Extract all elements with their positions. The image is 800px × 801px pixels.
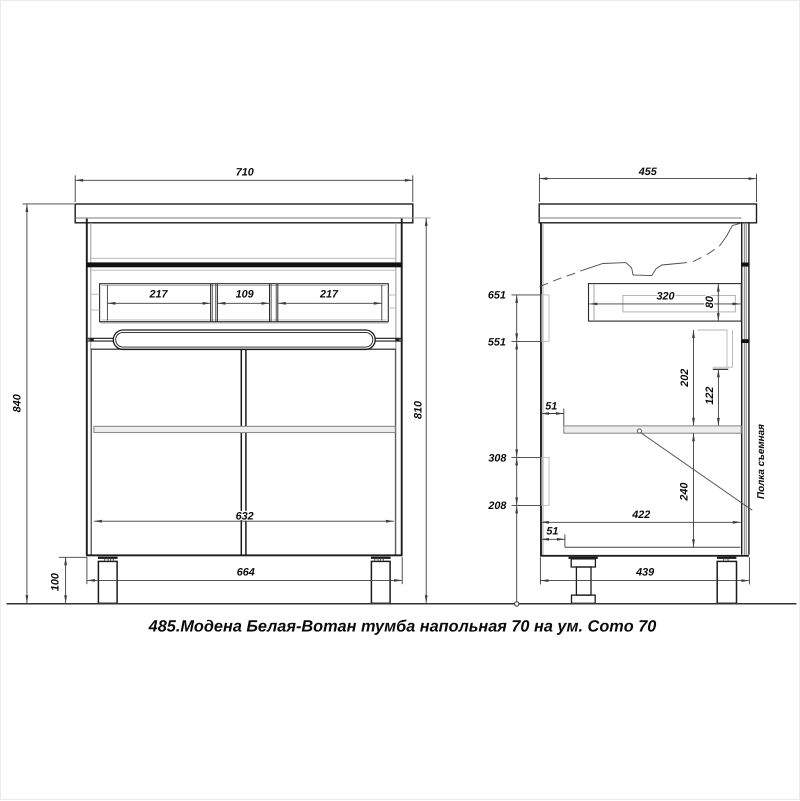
svg-text:320: 320 (656, 290, 674, 302)
svg-text:664: 664 (237, 567, 255, 579)
svg-text:51: 51 (545, 400, 557, 412)
svg-text:109: 109 (236, 288, 254, 300)
svg-text:217: 217 (148, 288, 168, 300)
svg-text:Полка съемная: Полка съемная (756, 424, 767, 499)
svg-text:217: 217 (319, 288, 339, 300)
svg-text:455: 455 (638, 166, 658, 178)
svg-text:710: 710 (236, 167, 254, 179)
svg-text:308: 308 (488, 452, 506, 464)
svg-text:810: 810 (412, 401, 424, 419)
svg-text:632: 632 (236, 510, 254, 522)
svg-text:485.Модена Белая-Вотан тумба н: 485.Модена Белая-Вотан тумба напольная 7… (148, 618, 657, 636)
svg-text:551: 551 (488, 336, 506, 348)
svg-text:80: 80 (704, 296, 716, 308)
svg-text:51: 51 (546, 526, 558, 538)
svg-text:840: 840 (12, 394, 24, 412)
svg-text:122: 122 (704, 387, 716, 405)
svg-text:439: 439 (635, 566, 654, 578)
svg-text:422: 422 (631, 509, 650, 521)
svg-text:202: 202 (679, 369, 691, 388)
svg-text:651: 651 (488, 289, 506, 301)
svg-text:100: 100 (50, 573, 62, 591)
svg-text:208: 208 (487, 500, 506, 512)
svg-text:240: 240 (678, 483, 690, 502)
